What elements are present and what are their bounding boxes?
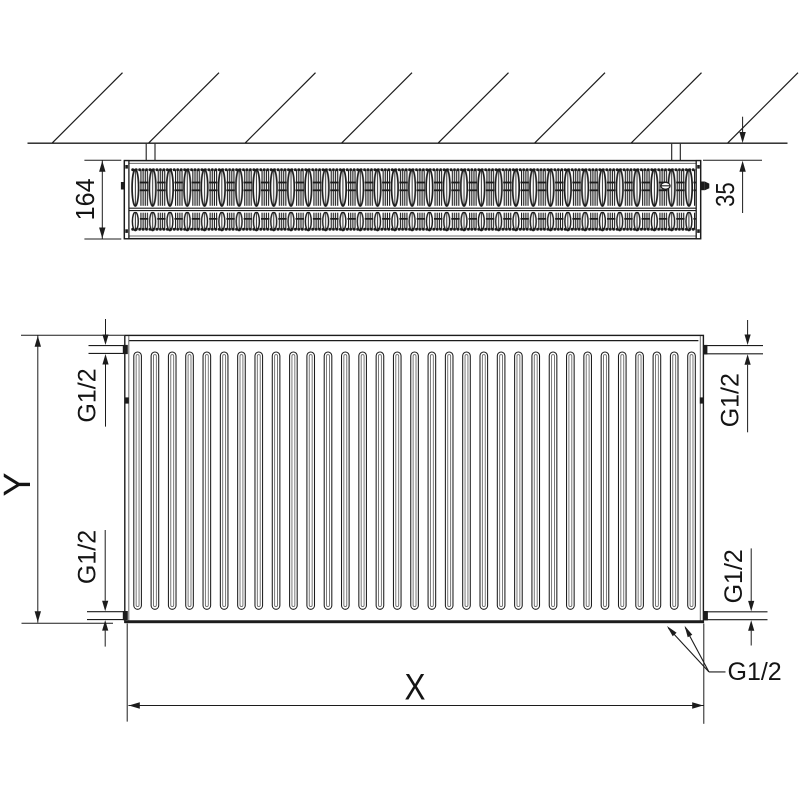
svg-text:Y: Y (0, 472, 38, 496)
svg-text:X: X (405, 667, 426, 708)
svg-text:35: 35 (712, 182, 741, 207)
svg-text:G1/2: G1/2 (73, 530, 101, 584)
svg-text:G1/2: G1/2 (720, 549, 748, 603)
svg-text:G1/2: G1/2 (717, 373, 745, 427)
svg-text:164: 164 (72, 178, 100, 220)
svg-text:G1/2: G1/2 (728, 658, 782, 686)
svg-text:G1/2: G1/2 (73, 368, 101, 422)
